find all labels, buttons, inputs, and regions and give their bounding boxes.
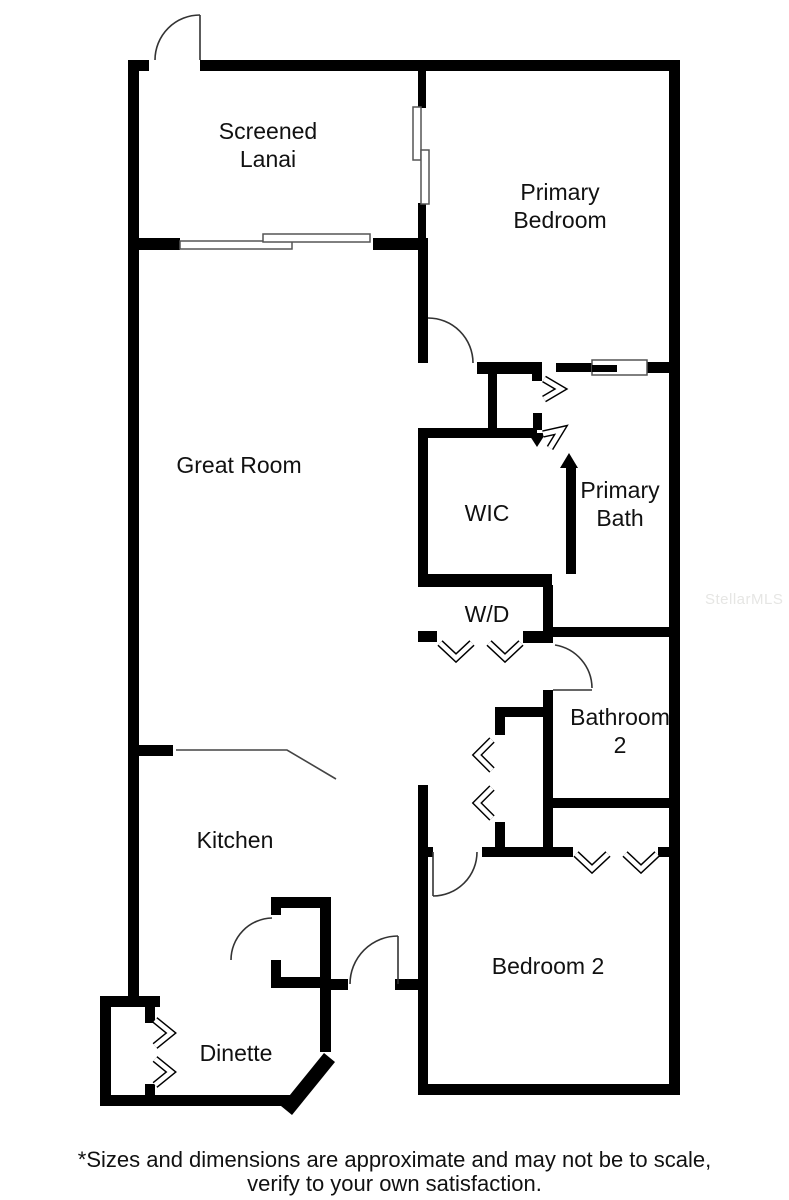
room-label-line: Primary [580, 476, 659, 504]
room-label-line: WIC [465, 499, 510, 527]
kitchen-counter-line [176, 750, 336, 779]
disclaimer-text: *Sizes and dimensions are approximate an… [0, 1148, 789, 1196]
room-label-line: Bedroom 2 [492, 952, 605, 980]
dinette-diagonal-wall [281, 1053, 335, 1115]
disclaimer-line-1: *Sizes and dimensions are approximate an… [0, 1148, 789, 1172]
room-label-bedroom-2: Bedroom 2 [492, 952, 605, 980]
room-label-line: Bedroom [513, 206, 606, 234]
room-label-screened-lanai: Screened Lanai [219, 117, 317, 173]
hall-door-arc [350, 936, 398, 984]
floorplan-page: Screened Lanai Primary Bedroom Great Roo… [0, 0, 789, 1200]
pocket-door-leaf [592, 365, 617, 372]
entry-door-arc [155, 15, 200, 60]
room-label-wic: WIC [465, 499, 510, 527]
floorplan-drawing [0, 0, 789, 1200]
room-label-great-room: Great Room [176, 451, 301, 479]
pantry-door-arc [231, 918, 272, 960]
room-label-line: Bath [580, 504, 659, 532]
bathroom2-door-arc [555, 645, 592, 688]
room-label-line: Screened [219, 117, 317, 145]
room-label-line: Great Room [176, 451, 301, 479]
room-label-line: 2 [570, 731, 670, 759]
room-label-line: Bathroom [570, 703, 670, 731]
room-label-bathroom-2: Bathroom 2 [570, 703, 670, 759]
lanai-slider-panel [263, 234, 370, 242]
lanai-side-slider-panel [421, 150, 429, 204]
room-label-wd: W/D [465, 600, 510, 628]
room-label-dinette: Dinette [200, 1039, 273, 1067]
stellar-mls-watermark: StellarMLS [705, 591, 783, 608]
room-label-line: Primary [513, 178, 606, 206]
arrow-up-icon [560, 453, 578, 468]
disclaimer-line-2: verify to your own satisfaction. [0, 1172, 789, 1196]
room-label-primary-bath: Primary Bath [580, 476, 659, 532]
room-label-line: W/D [465, 600, 510, 628]
lanai-side-slider-panel [413, 107, 421, 160]
primary-bedroom-door-arc [428, 318, 473, 363]
room-label-line: Kitchen [197, 826, 274, 854]
room-label-line: Lanai [219, 145, 317, 173]
room-label-line: Dinette [200, 1039, 273, 1067]
room-label-kitchen: Kitchen [197, 826, 274, 854]
bedroom2-door-arc [433, 852, 477, 896]
room-label-primary-bedroom: Primary Bedroom [513, 178, 606, 234]
